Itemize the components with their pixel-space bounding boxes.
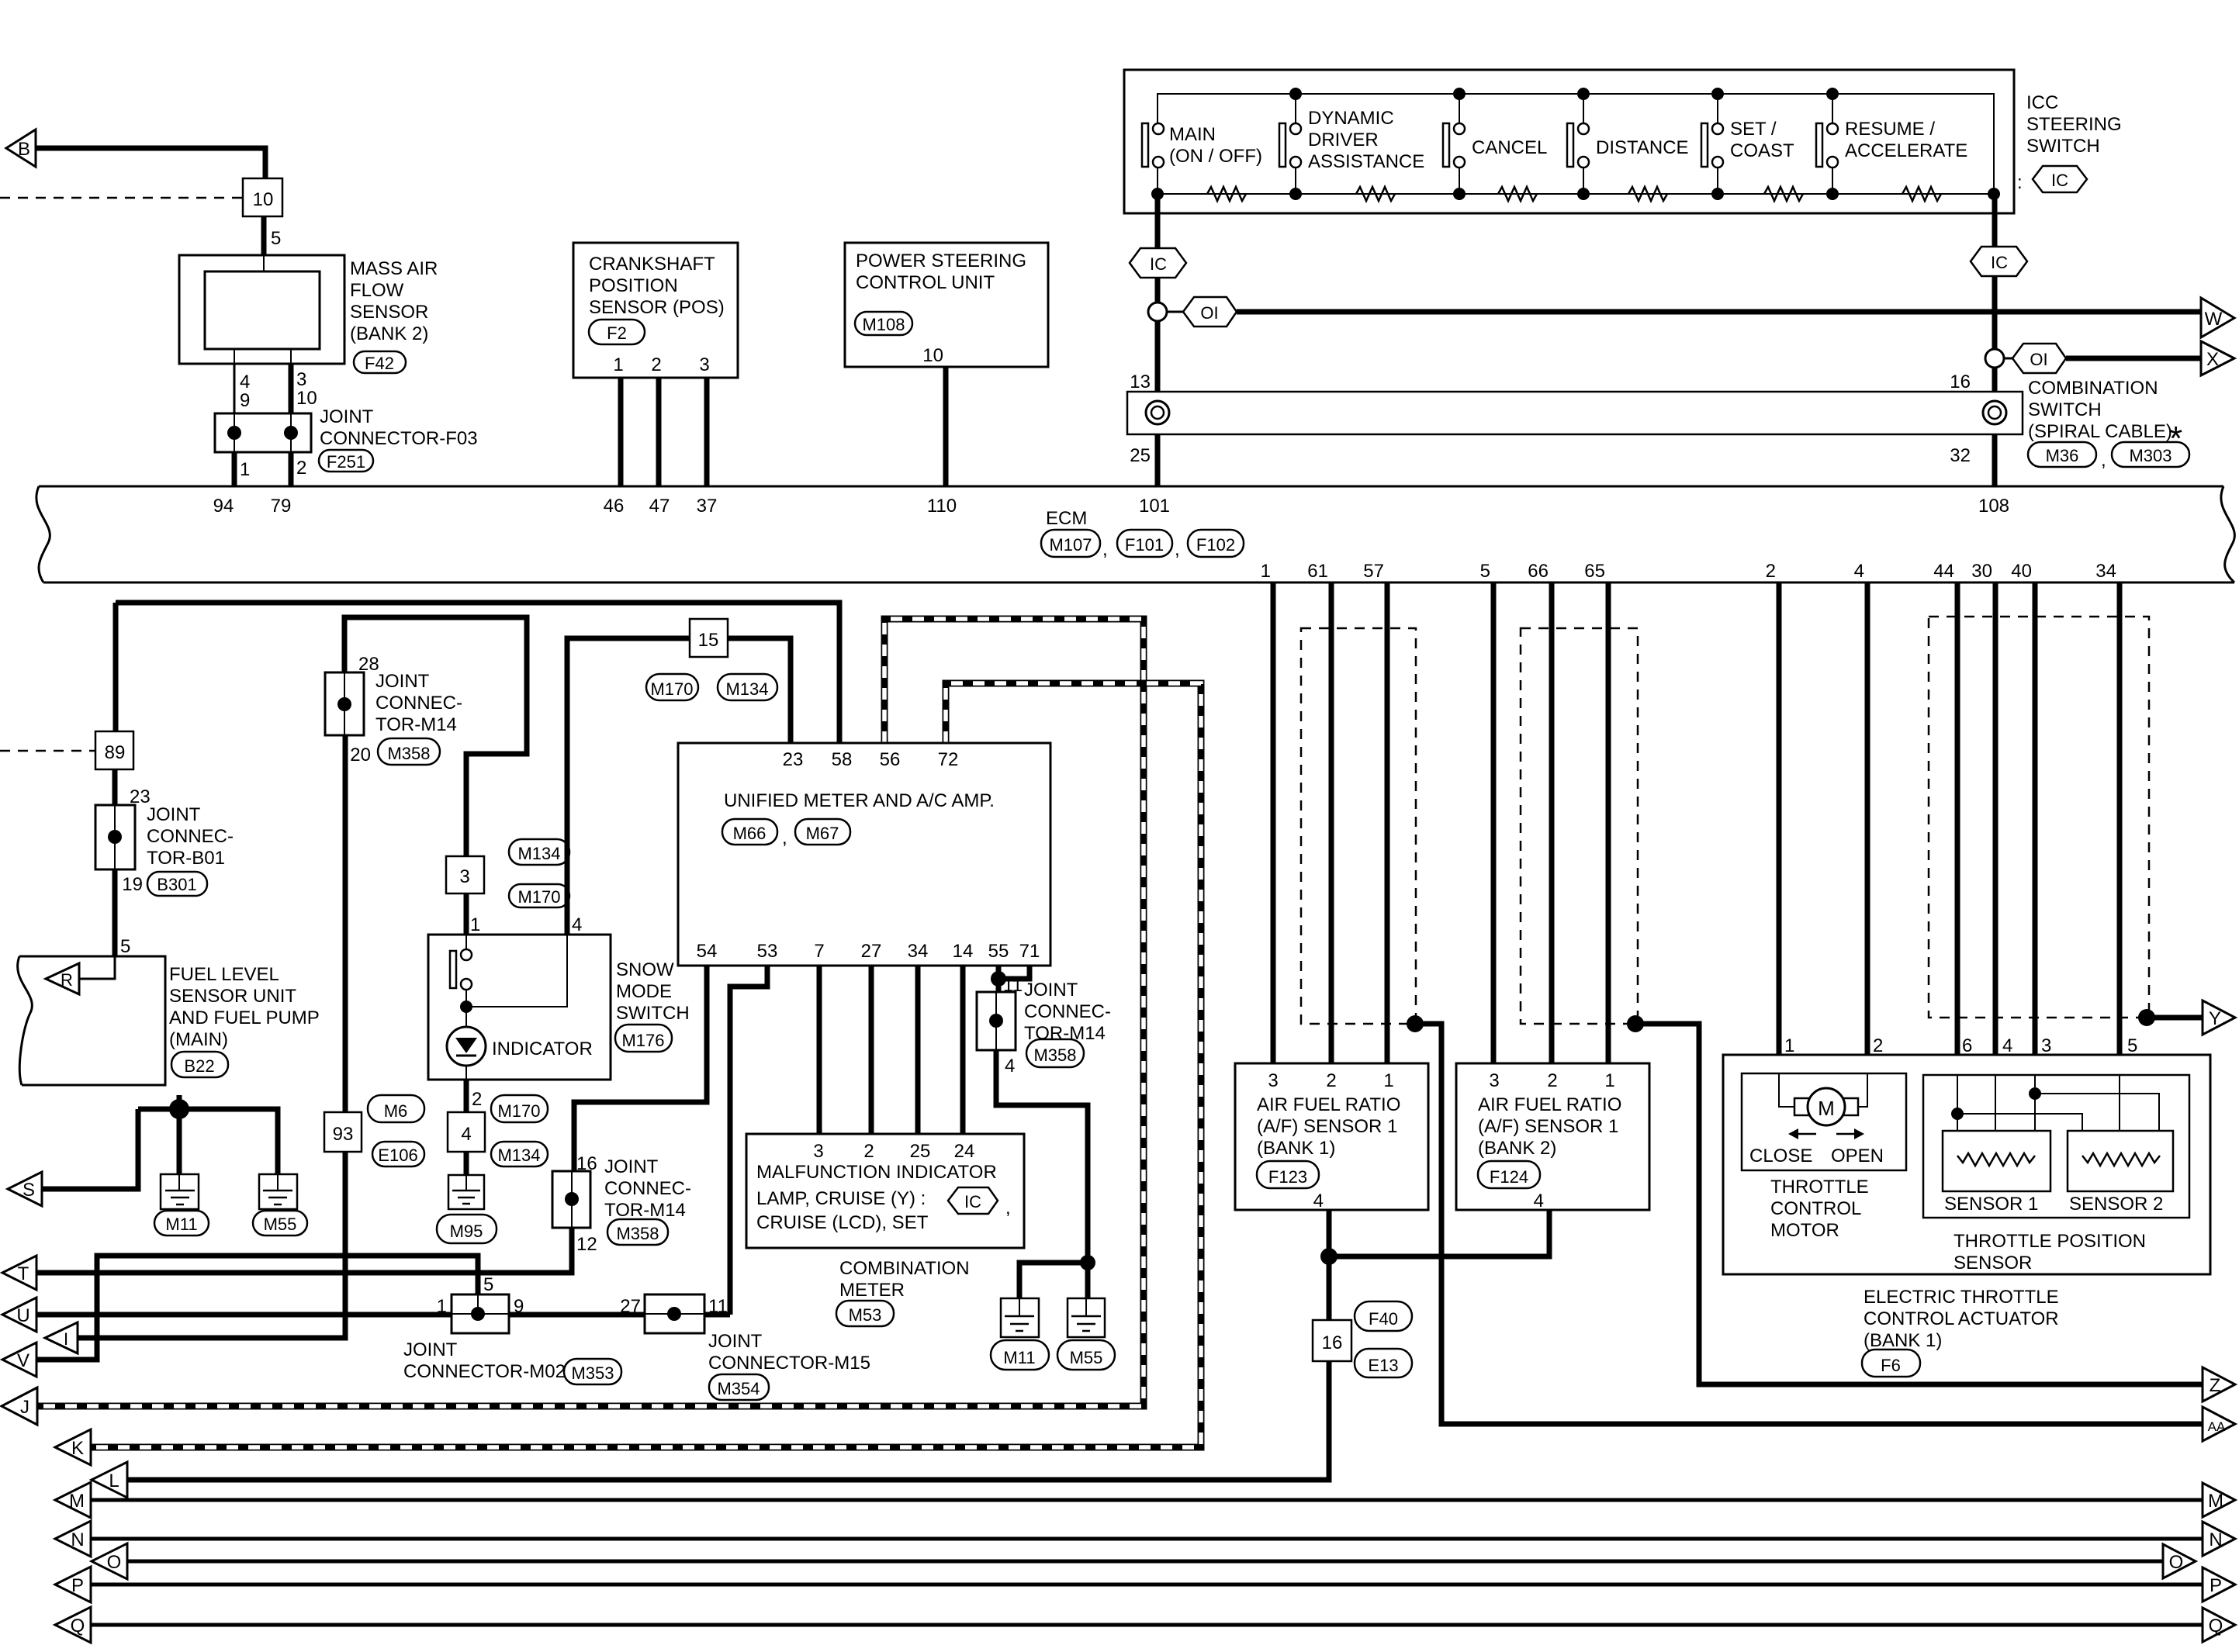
svg-text:1: 1 xyxy=(437,1296,447,1317)
svg-text:TOR-M14: TOR-M14 xyxy=(375,714,457,735)
svg-text:34: 34 xyxy=(2095,561,2116,582)
svg-text:M170: M170 xyxy=(497,1101,540,1121)
svg-text:1: 1 xyxy=(1604,1070,1614,1091)
svg-text:IC: IC xyxy=(1150,254,1167,274)
svg-text:M11: M11 xyxy=(165,1215,197,1234)
svg-text:F101: F101 xyxy=(1125,535,1164,555)
svg-text:M303: M303 xyxy=(2129,446,2172,465)
svg-text:CLOSE: CLOSE xyxy=(1749,1146,1812,1166)
svg-text:66: 66 xyxy=(1528,561,1549,582)
svg-text:JOINT: JOINT xyxy=(604,1156,659,1177)
svg-text:M134: M134 xyxy=(497,1146,540,1165)
svg-text:32: 32 xyxy=(1950,445,1971,466)
svg-text:2: 2 xyxy=(1547,1070,1557,1091)
svg-text:POWER STEERING: POWER STEERING xyxy=(856,251,1026,271)
svg-text:F124: F124 xyxy=(1490,1167,1528,1187)
svg-text:(ON / OFF): (ON / OFF) xyxy=(1169,146,1262,167)
svg-text:STEERING: STEERING xyxy=(2026,114,2122,135)
svg-text:1: 1 xyxy=(1784,1035,1794,1056)
svg-text:M353: M353 xyxy=(571,1363,614,1383)
svg-text:M67: M67 xyxy=(806,824,839,843)
svg-text:J: J xyxy=(20,1397,29,1418)
svg-text:5: 5 xyxy=(483,1274,493,1295)
svg-text:U: U xyxy=(16,1305,29,1326)
svg-text:M358: M358 xyxy=(1033,1045,1076,1065)
svg-text:JOINT: JOINT xyxy=(1024,980,1078,1001)
svg-text:I: I xyxy=(64,1329,68,1349)
svg-text:N: N xyxy=(71,1529,84,1550)
svg-text:2: 2 xyxy=(651,354,661,375)
svg-text:M55: M55 xyxy=(264,1215,297,1234)
svg-text:CONNECTOR-M15: CONNECTOR-M15 xyxy=(708,1353,870,1374)
svg-text:SNOW: SNOW xyxy=(616,959,674,980)
svg-text:25: 25 xyxy=(910,1141,931,1162)
svg-text:30: 30 xyxy=(1971,561,1992,582)
svg-text:61: 61 xyxy=(1307,561,1328,582)
svg-text:METER: METER xyxy=(839,1280,905,1301)
svg-text:(A/F) SENSOR 1: (A/F) SENSOR 1 xyxy=(1478,1116,1618,1137)
svg-text:(BANK 2): (BANK 2) xyxy=(350,323,428,344)
svg-text:M11: M11 xyxy=(1003,1348,1035,1367)
svg-text:THROTTLE POSITION: THROTTLE POSITION xyxy=(1954,1231,2146,1252)
svg-text:O: O xyxy=(107,1552,122,1573)
svg-text:E13: E13 xyxy=(1368,1356,1398,1375)
svg-text:3: 3 xyxy=(813,1141,823,1162)
svg-text:58: 58 xyxy=(832,749,853,770)
svg-text:CONNEC-: CONNEC- xyxy=(375,693,462,714)
svg-text:4: 4 xyxy=(2002,1035,2012,1056)
svg-text:M354: M354 xyxy=(717,1379,760,1398)
svg-text:AIR FUEL RATIO: AIR FUEL RATIO xyxy=(1257,1094,1400,1115)
svg-text:16: 16 xyxy=(576,1153,597,1174)
svg-text:1: 1 xyxy=(240,459,250,480)
svg-text:SENSOR (POS): SENSOR (POS) xyxy=(589,297,725,318)
svg-text:SET /: SET / xyxy=(1730,119,1777,140)
svg-text:M134: M134 xyxy=(725,679,768,699)
svg-text:11: 11 xyxy=(708,1296,728,1317)
svg-text:3: 3 xyxy=(699,354,709,375)
svg-text:CONNECTOR-M02: CONNECTOR-M02 xyxy=(403,1361,566,1382)
svg-text:,: , xyxy=(1175,539,1180,560)
svg-text:FLOW: FLOW xyxy=(350,280,404,301)
svg-text:ICC: ICC xyxy=(2026,92,2058,113)
svg-text:CONTROL ACTUATOR: CONTROL ACTUATOR xyxy=(1864,1308,2059,1329)
svg-text:15: 15 xyxy=(698,630,719,651)
svg-text:4: 4 xyxy=(1854,561,1864,582)
svg-text:2: 2 xyxy=(1873,1035,1883,1056)
svg-text:M55: M55 xyxy=(1070,1348,1103,1367)
svg-text:K: K xyxy=(71,1438,84,1459)
svg-text:Z: Z xyxy=(2210,1375,2221,1396)
svg-text::: : xyxy=(2017,172,2023,193)
svg-text:F251: F251 xyxy=(327,452,365,472)
svg-text:JOINT: JOINT xyxy=(403,1339,458,1360)
svg-text:JOINT: JOINT xyxy=(147,804,201,825)
svg-text:AIR FUEL RATIO: AIR FUEL RATIO xyxy=(1478,1094,1621,1115)
svg-text:M: M xyxy=(69,1491,85,1512)
svg-text:27: 27 xyxy=(620,1296,641,1317)
svg-text:23: 23 xyxy=(783,749,804,770)
svg-text:OPEN: OPEN xyxy=(1831,1146,1884,1166)
svg-text:AND FUEL PUMP: AND FUEL PUMP xyxy=(169,1007,320,1028)
svg-text:94: 94 xyxy=(213,496,234,517)
svg-text:DRIVER: DRIVER xyxy=(1308,130,1379,150)
svg-text:M53: M53 xyxy=(849,1305,882,1325)
svg-text:3: 3 xyxy=(1268,1070,1278,1091)
svg-text:CANCEL: CANCEL xyxy=(1472,137,1547,158)
svg-text:MAIN: MAIN xyxy=(1169,124,1216,145)
svg-text:1: 1 xyxy=(470,914,480,935)
svg-text:Q: Q xyxy=(2209,1616,2223,1636)
svg-text:MODE: MODE xyxy=(616,981,672,1002)
svg-text:1: 1 xyxy=(613,354,623,375)
svg-text:89: 89 xyxy=(105,742,126,763)
svg-text:R: R xyxy=(61,970,73,990)
svg-text:9: 9 xyxy=(514,1296,524,1317)
svg-text:RESUME /: RESUME / xyxy=(1845,119,1935,140)
svg-text:4: 4 xyxy=(1313,1191,1324,1211)
svg-text:T: T xyxy=(18,1263,29,1284)
svg-text:MALFUNCTION INDICATOR: MALFUNCTION INDICATOR xyxy=(756,1162,997,1183)
svg-text:CRANKSHAFT: CRANKSHAFT xyxy=(589,254,715,275)
svg-text:5: 5 xyxy=(1480,561,1490,582)
svg-text:MOTOR: MOTOR xyxy=(1770,1220,1839,1241)
svg-text:2: 2 xyxy=(1766,561,1776,582)
svg-text:24: 24 xyxy=(954,1141,975,1162)
svg-text:SWITCH: SWITCH xyxy=(2026,136,2100,157)
svg-text:F123: F123 xyxy=(1268,1167,1307,1187)
svg-text:M170: M170 xyxy=(650,679,693,699)
svg-text:3: 3 xyxy=(296,369,306,390)
svg-text:SENSOR: SENSOR xyxy=(1954,1253,2032,1274)
svg-text:,: , xyxy=(2101,450,2106,471)
svg-text:55: 55 xyxy=(988,941,1009,962)
svg-text:57: 57 xyxy=(1363,561,1384,582)
svg-text:ACCELERATE: ACCELERATE xyxy=(1845,140,1967,161)
svg-text:DISTANCE: DISTANCE xyxy=(1596,137,1689,158)
svg-text:7: 7 xyxy=(814,941,824,962)
svg-text:M134: M134 xyxy=(517,844,560,863)
svg-text:3: 3 xyxy=(459,866,469,887)
svg-text:CONNEC-: CONNEC- xyxy=(147,826,234,847)
svg-text:(BANK 2): (BANK 2) xyxy=(1478,1138,1556,1159)
svg-text:M108: M108 xyxy=(862,315,905,334)
svg-text:SENSOR UNIT: SENSOR UNIT xyxy=(169,986,296,1007)
svg-text:(SPIRAL CABLE): (SPIRAL CABLE) xyxy=(2028,421,2172,442)
svg-text:,: , xyxy=(1102,539,1108,560)
svg-text:6: 6 xyxy=(1962,1035,1972,1056)
svg-text:34: 34 xyxy=(908,941,929,962)
svg-text:13: 13 xyxy=(1130,372,1151,392)
svg-text:IC: IC xyxy=(2051,171,2068,190)
svg-text:SENSOR: SENSOR xyxy=(350,302,428,323)
svg-text:P: P xyxy=(2210,1575,2222,1596)
svg-text:101: 101 xyxy=(1139,496,1170,517)
svg-text:,: , xyxy=(782,828,787,848)
svg-text:4: 4 xyxy=(1534,1191,1544,1211)
svg-text:CONNECTOR-F03: CONNECTOR-F03 xyxy=(320,428,478,449)
svg-text:B: B xyxy=(18,139,30,160)
svg-text:11: 11 xyxy=(1003,975,1023,996)
svg-text:S: S xyxy=(22,1180,35,1201)
svg-text:10: 10 xyxy=(922,345,943,366)
svg-text:108: 108 xyxy=(1978,496,2009,517)
svg-text:46: 46 xyxy=(604,496,625,517)
svg-text:93: 93 xyxy=(333,1124,354,1145)
svg-text:10: 10 xyxy=(296,388,317,409)
svg-text:M: M xyxy=(1818,1097,1835,1120)
svg-text:UNIFIED METER AND A/C AMP.: UNIFIED METER AND A/C AMP. xyxy=(724,790,995,811)
svg-text:1: 1 xyxy=(1261,561,1271,582)
svg-text:THROTTLE: THROTTLE xyxy=(1770,1177,1869,1198)
svg-text:OI: OI xyxy=(2030,350,2047,369)
svg-text:COMBINATION: COMBINATION xyxy=(2028,378,2158,399)
svg-text:10: 10 xyxy=(253,189,274,210)
svg-text:M170: M170 xyxy=(517,887,560,907)
svg-text:CONNEC-: CONNEC- xyxy=(604,1178,691,1199)
svg-text:(MAIN): (MAIN) xyxy=(169,1029,228,1050)
svg-text:IC: IC xyxy=(964,1192,981,1211)
svg-text:POSITION: POSITION xyxy=(589,275,678,296)
svg-text:F42: F42 xyxy=(365,354,394,373)
svg-text:M358: M358 xyxy=(616,1224,659,1243)
svg-text:SWITCH: SWITCH xyxy=(2028,399,2102,420)
svg-text:4: 4 xyxy=(461,1124,471,1145)
svg-text:N: N xyxy=(2209,1529,2222,1550)
svg-text:SENSOR 1: SENSOR 1 xyxy=(1944,1194,2038,1215)
svg-text:W: W xyxy=(2205,309,2223,330)
svg-text:3: 3 xyxy=(1489,1070,1499,1091)
svg-text:71: 71 xyxy=(1019,941,1040,962)
svg-text:,: , xyxy=(1005,1198,1011,1218)
svg-text:Y: Y xyxy=(2209,1008,2221,1029)
svg-text:54: 54 xyxy=(697,941,718,962)
svg-text:12: 12 xyxy=(576,1234,597,1255)
svg-text:M36: M36 xyxy=(2046,446,2079,465)
svg-text:27: 27 xyxy=(861,941,882,962)
svg-text:F2: F2 xyxy=(607,323,627,343)
svg-text:MASS AIR: MASS AIR xyxy=(350,258,438,279)
svg-text:(BANK 1): (BANK 1) xyxy=(1257,1138,1335,1159)
svg-text:SENSOR 2: SENSOR 2 xyxy=(2069,1194,2163,1215)
svg-text:16: 16 xyxy=(1950,372,1971,392)
svg-text:SWITCH: SWITCH xyxy=(616,1003,690,1024)
svg-text:110: 110 xyxy=(927,496,957,517)
svg-text:65: 65 xyxy=(1584,561,1605,582)
svg-text:E106: E106 xyxy=(378,1146,417,1165)
svg-text:LAMP, CRUISE (Y) :: LAMP, CRUISE (Y) : xyxy=(756,1188,926,1209)
svg-text:(A/F) SENSOR 1: (A/F) SENSOR 1 xyxy=(1257,1116,1397,1137)
svg-text:40: 40 xyxy=(2011,561,2032,582)
svg-text:IC: IC xyxy=(1991,253,2008,272)
svg-text:56: 56 xyxy=(880,749,901,770)
svg-text:2: 2 xyxy=(863,1141,874,1162)
svg-text:2: 2 xyxy=(1326,1070,1336,1091)
svg-text:OI: OI xyxy=(1200,303,1218,323)
svg-text:1: 1 xyxy=(1383,1070,1393,1091)
svg-text:(BANK 1): (BANK 1) xyxy=(1864,1330,1942,1351)
svg-text:P: P xyxy=(71,1575,84,1596)
svg-text:4: 4 xyxy=(572,914,582,935)
svg-text:5: 5 xyxy=(120,936,130,957)
svg-text:TOR-B01: TOR-B01 xyxy=(147,848,225,869)
svg-text:25: 25 xyxy=(1130,445,1151,466)
svg-text:2: 2 xyxy=(472,1089,482,1110)
svg-text:ECM: ECM xyxy=(1046,508,1087,529)
svg-text:M176: M176 xyxy=(621,1031,664,1050)
svg-text:72: 72 xyxy=(938,749,959,770)
svg-text:TOR-M14: TOR-M14 xyxy=(604,1200,686,1221)
svg-text:79: 79 xyxy=(271,496,292,517)
svg-text:F40: F40 xyxy=(1369,1309,1398,1329)
svg-text:M358: M358 xyxy=(387,744,430,763)
svg-text:53: 53 xyxy=(757,941,778,962)
svg-text:DYNAMIC: DYNAMIC xyxy=(1308,108,1394,129)
svg-text:CONTROL UNIT: CONTROL UNIT xyxy=(856,272,995,293)
svg-text:FUEL LEVEL: FUEL LEVEL xyxy=(169,964,279,985)
svg-text:16: 16 xyxy=(1322,1332,1343,1353)
svg-text:ELECTRIC THROTTLE: ELECTRIC THROTTLE xyxy=(1864,1287,2059,1308)
svg-text:F6: F6 xyxy=(1881,1356,1901,1375)
svg-text:JOINT: JOINT xyxy=(708,1331,763,1352)
svg-text:44: 44 xyxy=(1933,561,1954,582)
svg-text:AA: AA xyxy=(2208,1419,2226,1434)
svg-text:M66: M66 xyxy=(733,824,767,843)
svg-text:B22: B22 xyxy=(184,1056,214,1076)
svg-text:2: 2 xyxy=(296,458,306,479)
svg-text:3: 3 xyxy=(2041,1035,2051,1056)
svg-text:20: 20 xyxy=(350,745,371,766)
svg-text:19: 19 xyxy=(122,874,143,895)
svg-text:37: 37 xyxy=(697,496,718,517)
svg-text:M107: M107 xyxy=(1049,535,1092,555)
svg-text:M: M xyxy=(2208,1491,2223,1512)
svg-text:COAST: COAST xyxy=(1730,140,1794,161)
svg-text:F102: F102 xyxy=(1196,535,1235,555)
svg-text:L: L xyxy=(109,1471,119,1491)
svg-text:4: 4 xyxy=(1005,1056,1015,1077)
svg-text:Q: Q xyxy=(71,1616,85,1636)
svg-text:INDICATOR: INDICATOR xyxy=(492,1039,593,1059)
svg-text:COMBINATION: COMBINATION xyxy=(839,1258,970,1279)
svg-text:B301: B301 xyxy=(157,875,196,894)
svg-text:ASSISTANCE: ASSISTANCE xyxy=(1308,151,1424,172)
svg-text:CRUISE (LCD), SET: CRUISE (LCD), SET xyxy=(756,1212,929,1233)
svg-text:X: X xyxy=(2206,349,2219,370)
svg-text:4: 4 xyxy=(240,372,250,392)
svg-text:JOINT: JOINT xyxy=(375,671,430,692)
svg-text:M6: M6 xyxy=(384,1101,408,1121)
svg-text:9: 9 xyxy=(240,390,250,411)
svg-text:V: V xyxy=(17,1350,29,1371)
svg-text:5: 5 xyxy=(271,228,281,249)
svg-text:JOINT: JOINT xyxy=(320,406,374,427)
svg-text:47: 47 xyxy=(649,496,670,517)
svg-text:14: 14 xyxy=(953,941,974,962)
svg-text:O: O xyxy=(2169,1552,2184,1573)
svg-text:M95: M95 xyxy=(450,1222,483,1241)
svg-text:5: 5 xyxy=(2127,1035,2137,1056)
svg-text:CONTROL: CONTROL xyxy=(1770,1198,1861,1219)
svg-text:CONNEC-: CONNEC- xyxy=(1024,1001,1111,1022)
